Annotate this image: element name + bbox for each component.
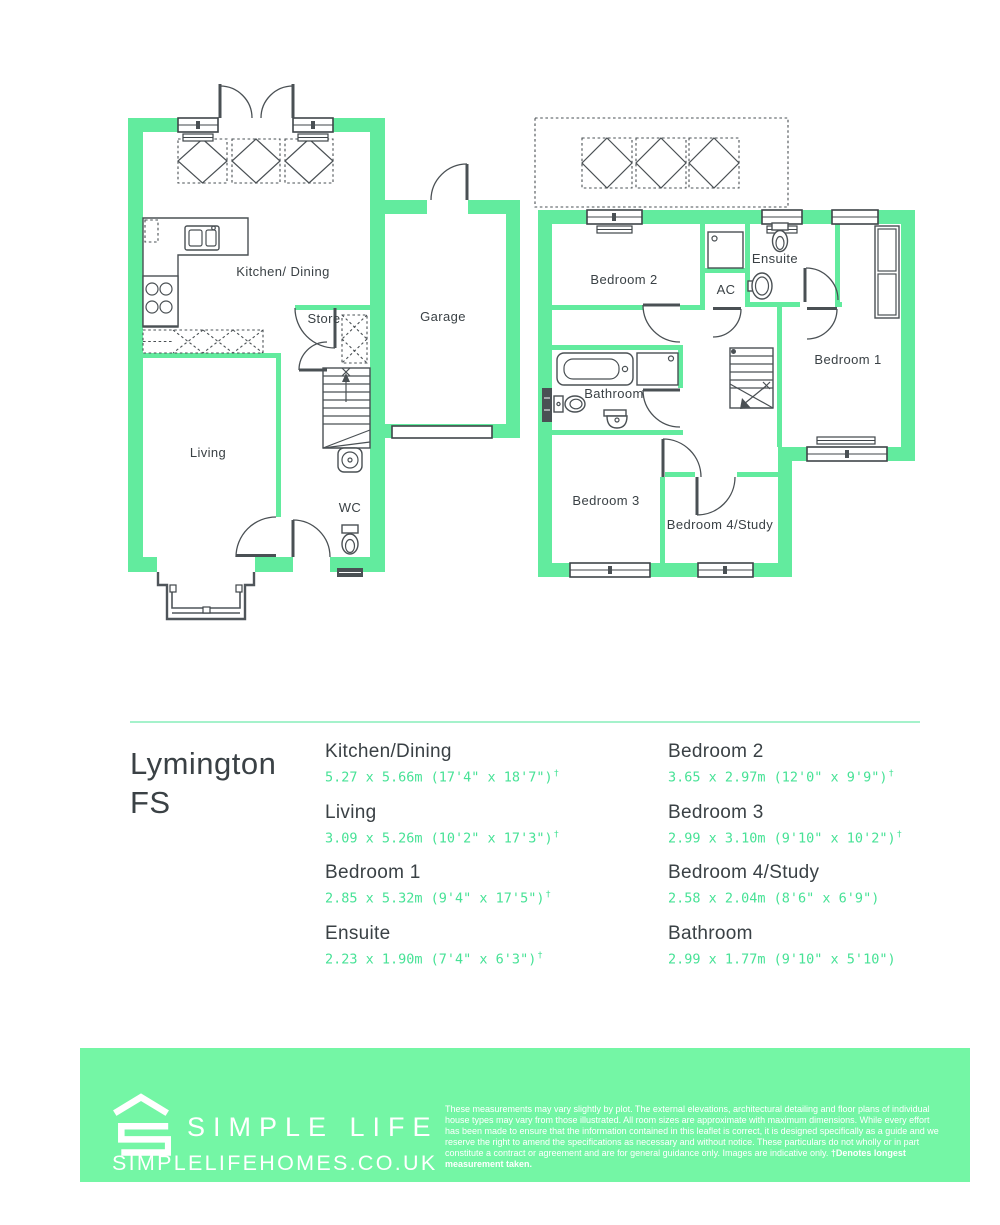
- brand-name: SIMPLE LIFE: [187, 1112, 439, 1143]
- longest-measurement-dagger: †: [554, 830, 559, 840]
- room-spec: Living 3.09 x 5.26m (10'2" x 17'3")†: [325, 802, 660, 848]
- section-divider: [130, 721, 920, 723]
- floorplan-leaflet-page: Kitchen/ Dining Store Garage Living WC: [0, 0, 1000, 1225]
- room-spec-column-2: Bedroom 2 3.65 x 2.97m (12'0" x 9'9")† B…: [668, 741, 1000, 983]
- ff-stairs: [730, 348, 773, 409]
- longest-measurement-dagger: †: [545, 890, 550, 900]
- room-spec: Bedroom 1 2.85 x 5.32m (9'4" x 17'5")†: [325, 862, 660, 908]
- label-bathroom: Bathroom: [584, 386, 644, 401]
- room-spec: Bedroom 3 2.99 x 3.10m (9'10" x 10'2")†: [668, 802, 1000, 848]
- room-spec: Ensuite 2.23 x 1.90m (7'4" x 6'3")†: [325, 923, 660, 969]
- longest-measurement-dagger: †: [888, 769, 893, 779]
- label-living: Living: [190, 445, 226, 460]
- room-spec: Bedroom 2 3.65 x 2.97m (12'0" x 9'9")†: [668, 741, 1000, 787]
- label-store: Store: [307, 311, 340, 326]
- page-title: Lymington FS: [130, 744, 276, 822]
- label-bedroom2: Bedroom 2: [590, 272, 657, 287]
- house-type-code: FS: [130, 783, 276, 822]
- ff-roof-rooflights: [535, 118, 788, 207]
- footer-band: SIMPLE LIFE SIMPLELIFEHOMES.CO.UK These …: [80, 1048, 970, 1182]
- gf-rooflight-icons: [178, 139, 333, 183]
- room-spec-column-1: Kitchen/Dining 5.27 x 5.66m (17'4" x 18'…: [325, 741, 660, 983]
- label-bedroom3: Bedroom 3: [572, 493, 639, 508]
- label-garage: Garage: [420, 309, 466, 324]
- label-ac: AC: [717, 282, 736, 297]
- website-url: SIMPLELIFEHOMES.CO.UK: [112, 1151, 437, 1176]
- room-spec: Bathroom 2.99 x 1.77m (9'10" x 5'10"): [668, 923, 1000, 969]
- ground-floor-plan: Kitchen/ Dining Store Garage Living WC: [125, 80, 525, 625]
- label-ensuite: Ensuite: [752, 251, 798, 266]
- room-spec: Kitchen/Dining 5.27 x 5.66m (17'4" x 18'…: [325, 741, 660, 787]
- label-wc: WC: [339, 500, 361, 515]
- gf-kitchen-fittings: [143, 218, 367, 363]
- radiator-icon: [542, 388, 552, 422]
- gf-stairs: [323, 368, 370, 448]
- label-bedroom1: Bedroom 1: [814, 352, 881, 367]
- label-kitchen-dining: Kitchen/ Dining: [236, 264, 329, 279]
- house-name: Lymington: [130, 744, 276, 783]
- ff-bedroom1-wardrobe: [875, 226, 899, 318]
- gf-walls: [128, 118, 520, 572]
- gf-bay-window: [158, 572, 254, 619]
- label-bedroom4: Bedroom 4/Study: [667, 517, 774, 532]
- longest-measurement-dagger: †: [897, 830, 902, 840]
- longest-measurement-dagger: †: [554, 769, 559, 779]
- longest-measurement-dagger: †: [537, 951, 542, 961]
- disclaimer-text: These measurements may vary slightly by …: [445, 1104, 940, 1169]
- first-floor-plan: Bedroom 2 AC Ensuite Bedroom 1 Bathroom …: [530, 110, 925, 590]
- room-spec: Bedroom 4/Study 2.58 x 2.04m (8'6" x 6'9…: [668, 862, 1000, 908]
- garage-door-icon: [392, 426, 492, 438]
